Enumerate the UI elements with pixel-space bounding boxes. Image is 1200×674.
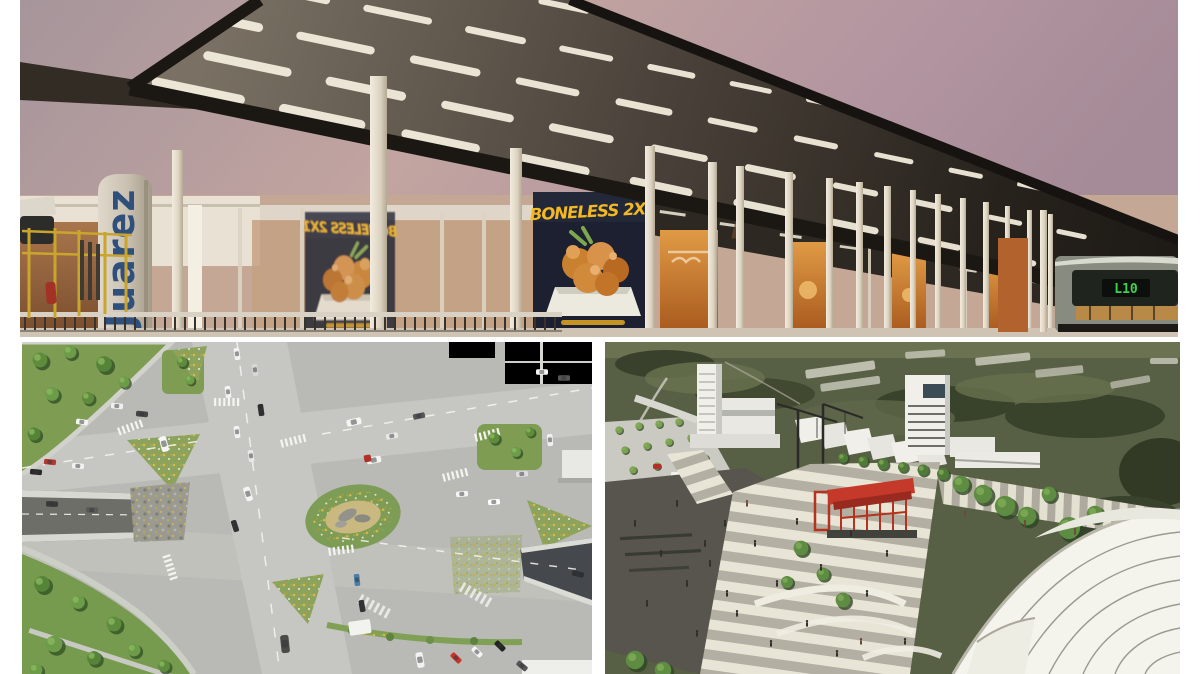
collage: BONELESS 2X1: [0, 0, 1200, 674]
station-rendering: BONELESS 2X1: [20, 0, 1178, 337]
boneless-poster: [529, 192, 656, 330]
route-led-text: L10: [1114, 282, 1138, 297]
plaza-rendering: [605, 342, 1180, 674]
interchange-aerial-rendering: [22, 342, 592, 674]
